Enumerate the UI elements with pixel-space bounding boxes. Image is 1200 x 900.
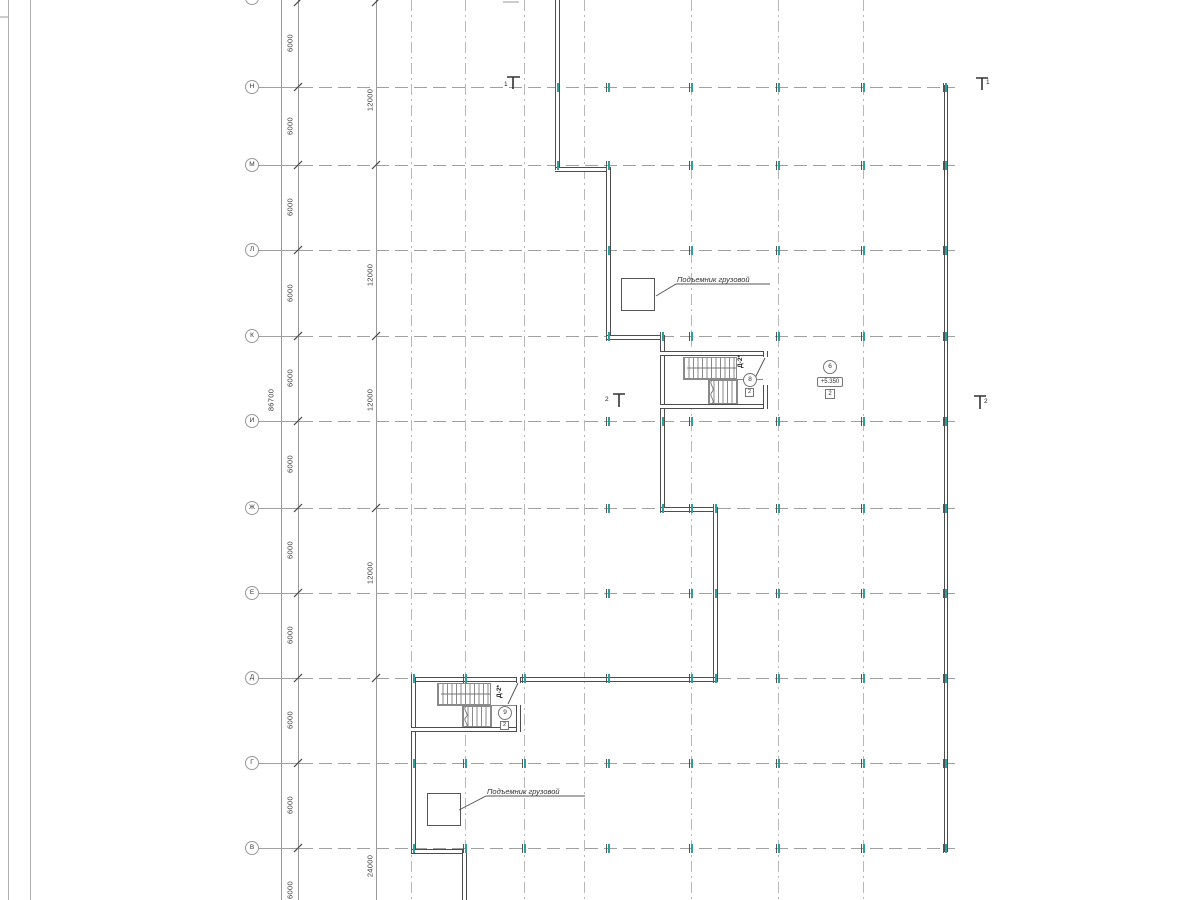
column-tick (861, 759, 866, 768)
dim-label-6000: 6000 (286, 541, 295, 559)
column-tick (943, 246, 948, 255)
dim-label-6000: 6000 (286, 117, 295, 135)
column-tick (776, 844, 781, 853)
hoist-label-upper: Подъемник грузовой (677, 275, 750, 284)
stair-lower-flight (437, 683, 491, 705)
grid-row-line (300, 848, 955, 849)
elevation-tag: +5.350 (817, 377, 843, 387)
grid-row-stub (257, 508, 301, 509)
row-bubble: Г (245, 756, 259, 770)
column-tick (522, 674, 527, 683)
dimension-line-6000 (298, 0, 299, 900)
grid-row-line (300, 250, 955, 251)
column-tick (861, 246, 866, 255)
dim-label-6000: 6000 (286, 34, 295, 52)
dim-label-major: 12000 (366, 389, 375, 411)
wall-right (944, 85, 948, 852)
column-tick (943, 161, 948, 170)
dim-label-6000: 6000 (286, 455, 295, 473)
section-mark-1-right-label: 1 (986, 79, 990, 86)
sheet-border-line (8, 0, 9, 900)
floor-plan-sheet: Н М Л К И Ж Е Д Г В 6000 6000 6000 6000 … (0, 0, 1200, 900)
column-tick (660, 504, 665, 513)
column-tick (689, 83, 694, 92)
stair-lower-door-opening (516, 683, 521, 705)
column-tick (861, 844, 866, 853)
row-bubble: И (245, 414, 259, 428)
grid-row-stub (257, 848, 301, 849)
column-tick (943, 83, 948, 92)
column-tick (606, 759, 611, 768)
column-tick (660, 332, 665, 341)
column-tick (689, 161, 694, 170)
column-tick (861, 674, 866, 683)
grid-row-line (300, 593, 955, 594)
column-tick (943, 759, 948, 768)
sheet-border-line (30, 0, 31, 900)
column-tick (463, 759, 468, 768)
dim-label-6000: 6000 (286, 198, 295, 216)
hoist-label-lower: Подъемник грузовой (487, 787, 560, 796)
column-tick (713, 504, 718, 513)
dimension-ticks (294, 0, 380, 852)
column-tick (522, 759, 527, 768)
room-number-upper: 8 (743, 373, 757, 387)
room-type-upper: 2 (745, 388, 754, 397)
dimension-line-major (376, 0, 377, 900)
column-tick (689, 844, 694, 853)
row-bubble: Ж (245, 501, 259, 515)
column-tick (776, 674, 781, 683)
column-tick (861, 161, 866, 170)
grid-row-line (300, 421, 955, 422)
hoist-box-lower (427, 793, 461, 826)
axis-tag-circle: 6 (823, 360, 837, 374)
column-tick (689, 332, 694, 341)
wall-segment (555, 167, 611, 172)
column-tick (606, 83, 611, 92)
column-tick (861, 504, 866, 513)
column-tick (861, 332, 866, 341)
stair-lower-flight (462, 706, 492, 727)
dim-label-major: 24000 (366, 855, 375, 877)
section-mark-2-left-label: 2 (605, 396, 609, 403)
grid-row-stub (257, 165, 301, 166)
room-number-lower: 9 (498, 706, 512, 720)
misc-marks (0, 2, 519, 17)
grid-row-line (300, 508, 955, 509)
door-tag-lower: Д-2* (496, 685, 503, 698)
wall-segment (411, 849, 467, 854)
grid-row-stub (257, 763, 301, 764)
column-tick (606, 417, 611, 426)
door-leaves (508, 358, 765, 704)
grid-row-stub (257, 250, 301, 251)
column-tick (606, 246, 611, 255)
column-tick (943, 504, 948, 513)
wall-segment (606, 335, 664, 340)
row-bubble: К (245, 329, 259, 343)
column-tick (713, 589, 718, 598)
grid-row-stub (257, 593, 301, 594)
stair-upper-flight (708, 380, 738, 404)
row-bubble: Д (245, 671, 259, 685)
column-tick (606, 504, 611, 513)
dimension-line-overall (281, 0, 282, 900)
dim-label-6000: 6000 (286, 796, 295, 814)
column-tick (555, 161, 560, 170)
dim-label-overall: 86700 (267, 389, 276, 411)
column-tick (776, 83, 781, 92)
hoist-box-upper (621, 278, 655, 311)
stair-upper-flight (683, 357, 737, 379)
grid-row-line (300, 87, 955, 88)
dim-label-6000: 6000 (286, 369, 295, 387)
column-tick (689, 504, 694, 513)
column-tick (776, 759, 781, 768)
column-tick (689, 759, 694, 768)
grid-row-stub (257, 421, 301, 422)
column-tick (463, 844, 468, 853)
row-bubble-partial (245, 0, 259, 5)
column-tick (606, 844, 611, 853)
level-type-tag: 2 (825, 389, 835, 399)
column-tick (943, 674, 948, 683)
section-mark-1-left-label: 1 (504, 81, 508, 88)
column-tick (861, 83, 866, 92)
column-tick (943, 417, 948, 426)
column-tick (689, 417, 694, 426)
dim-label-major: 12000 (366, 264, 375, 286)
dim-label-6000: 6000 (286, 284, 295, 302)
grid-row-stub (257, 336, 301, 337)
column-tick (522, 844, 527, 853)
column-tick (606, 674, 611, 683)
stair-upper-door-opening (763, 357, 768, 385)
column-tick (776, 332, 781, 341)
stair-upper-wall (660, 404, 768, 409)
column-tick (411, 674, 416, 683)
dim-label-6000: 6000 (286, 711, 295, 729)
row-bubble: Н (245, 80, 259, 94)
column-tick (660, 417, 665, 426)
grid-row-line (300, 165, 955, 166)
section-mark-2-right-label: 2 (984, 398, 988, 405)
column-tick (776, 161, 781, 170)
grid-row-line (300, 763, 955, 764)
column-tick (943, 844, 948, 853)
column-tick (555, 83, 560, 92)
grid-row-stub (257, 87, 301, 88)
column-tick (606, 332, 611, 341)
column-tick (776, 417, 781, 426)
column-tick (689, 674, 694, 683)
column-tick (943, 589, 948, 598)
lineart-overlay (0, 0, 1200, 900)
column-tick (861, 417, 866, 426)
column-tick (411, 844, 416, 853)
dim-label-major: 12000 (366, 562, 375, 584)
column-tick (776, 589, 781, 598)
column-tick (861, 589, 866, 598)
room-type-lower: 2 (500, 721, 509, 730)
dim-label-major: 12000 (366, 89, 375, 111)
column-grid-line (584, 0, 585, 900)
row-bubble: В (245, 841, 259, 855)
column-tick (689, 589, 694, 598)
grid-row-stub (257, 678, 301, 679)
column-tick (606, 161, 611, 170)
column-tick (463, 674, 468, 683)
row-bubble: Л (245, 243, 259, 257)
dim-label-6000: 6000 (286, 881, 295, 899)
column-tick (411, 759, 416, 768)
wall-segment (462, 849, 467, 900)
row-bubble: Е (245, 586, 259, 600)
column-tick (689, 246, 694, 255)
column-tick (776, 504, 781, 513)
dim-label-6000: 6000 (286, 626, 295, 644)
column-tick (606, 589, 611, 598)
door-tag-upper: Д-2* (737, 355, 744, 368)
column-tick (776, 246, 781, 255)
column-tick (943, 332, 948, 341)
column-tick (713, 674, 718, 683)
row-bubble: М (245, 158, 259, 172)
